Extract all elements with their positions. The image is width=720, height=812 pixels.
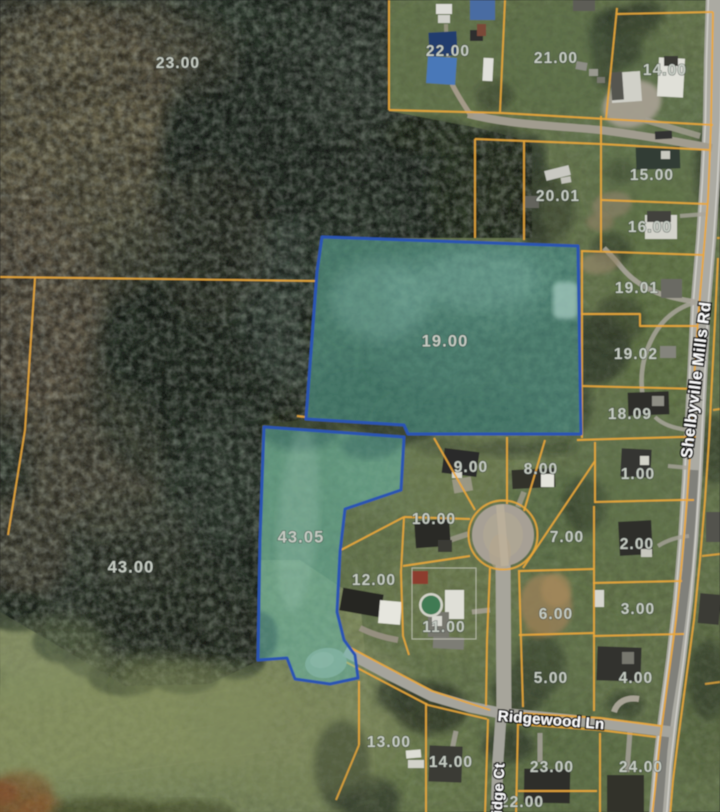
svg-text:13.00: 13.00 bbox=[367, 734, 411, 751]
svg-text:19.02: 19.02 bbox=[614, 346, 658, 363]
svg-text:10.00: 10.00 bbox=[412, 511, 456, 528]
svg-text:11.00: 11.00 bbox=[422, 619, 465, 636]
svg-text:19.00: 19.00 bbox=[422, 332, 469, 350]
svg-text:19.01: 19.01 bbox=[615, 280, 659, 297]
svg-text:23.00: 23.00 bbox=[156, 55, 200, 72]
svg-text:14.00: 14.00 bbox=[643, 62, 687, 79]
svg-text:6.00: 6.00 bbox=[539, 606, 574, 623]
svg-text:2.00: 2.00 bbox=[620, 536, 655, 553]
svg-text:20.01: 20.01 bbox=[536, 188, 580, 205]
svg-text:15.00: 15.00 bbox=[630, 167, 674, 184]
svg-text:24.00: 24.00 bbox=[619, 759, 663, 776]
svg-text:4.00: 4.00 bbox=[619, 670, 654, 687]
svg-text:3.00: 3.00 bbox=[621, 601, 656, 618]
svg-text:1.00: 1.00 bbox=[621, 466, 656, 483]
svg-text:43.05: 43.05 bbox=[278, 528, 325, 546]
svg-text:23.00: 23.00 bbox=[530, 759, 574, 776]
svg-text:7.00: 7.00 bbox=[550, 529, 585, 546]
svg-text:Ridge Ct: Ridge Ct bbox=[489, 763, 508, 812]
svg-text:14.00: 14.00 bbox=[429, 754, 473, 771]
svg-text:21.00: 21.00 bbox=[534, 50, 578, 67]
svg-text:5.00: 5.00 bbox=[534, 670, 569, 687]
svg-text:8.00: 8.00 bbox=[524, 461, 559, 478]
svg-text:12.00: 12.00 bbox=[352, 572, 396, 589]
svg-text:43.00: 43.00 bbox=[108, 558, 155, 576]
svg-text:16.00: 16.00 bbox=[628, 219, 672, 236]
svg-text:18.09: 18.09 bbox=[608, 406, 652, 423]
svg-text:9.00: 9.00 bbox=[454, 459, 489, 476]
svg-text:22.00: 22.00 bbox=[426, 43, 470, 60]
